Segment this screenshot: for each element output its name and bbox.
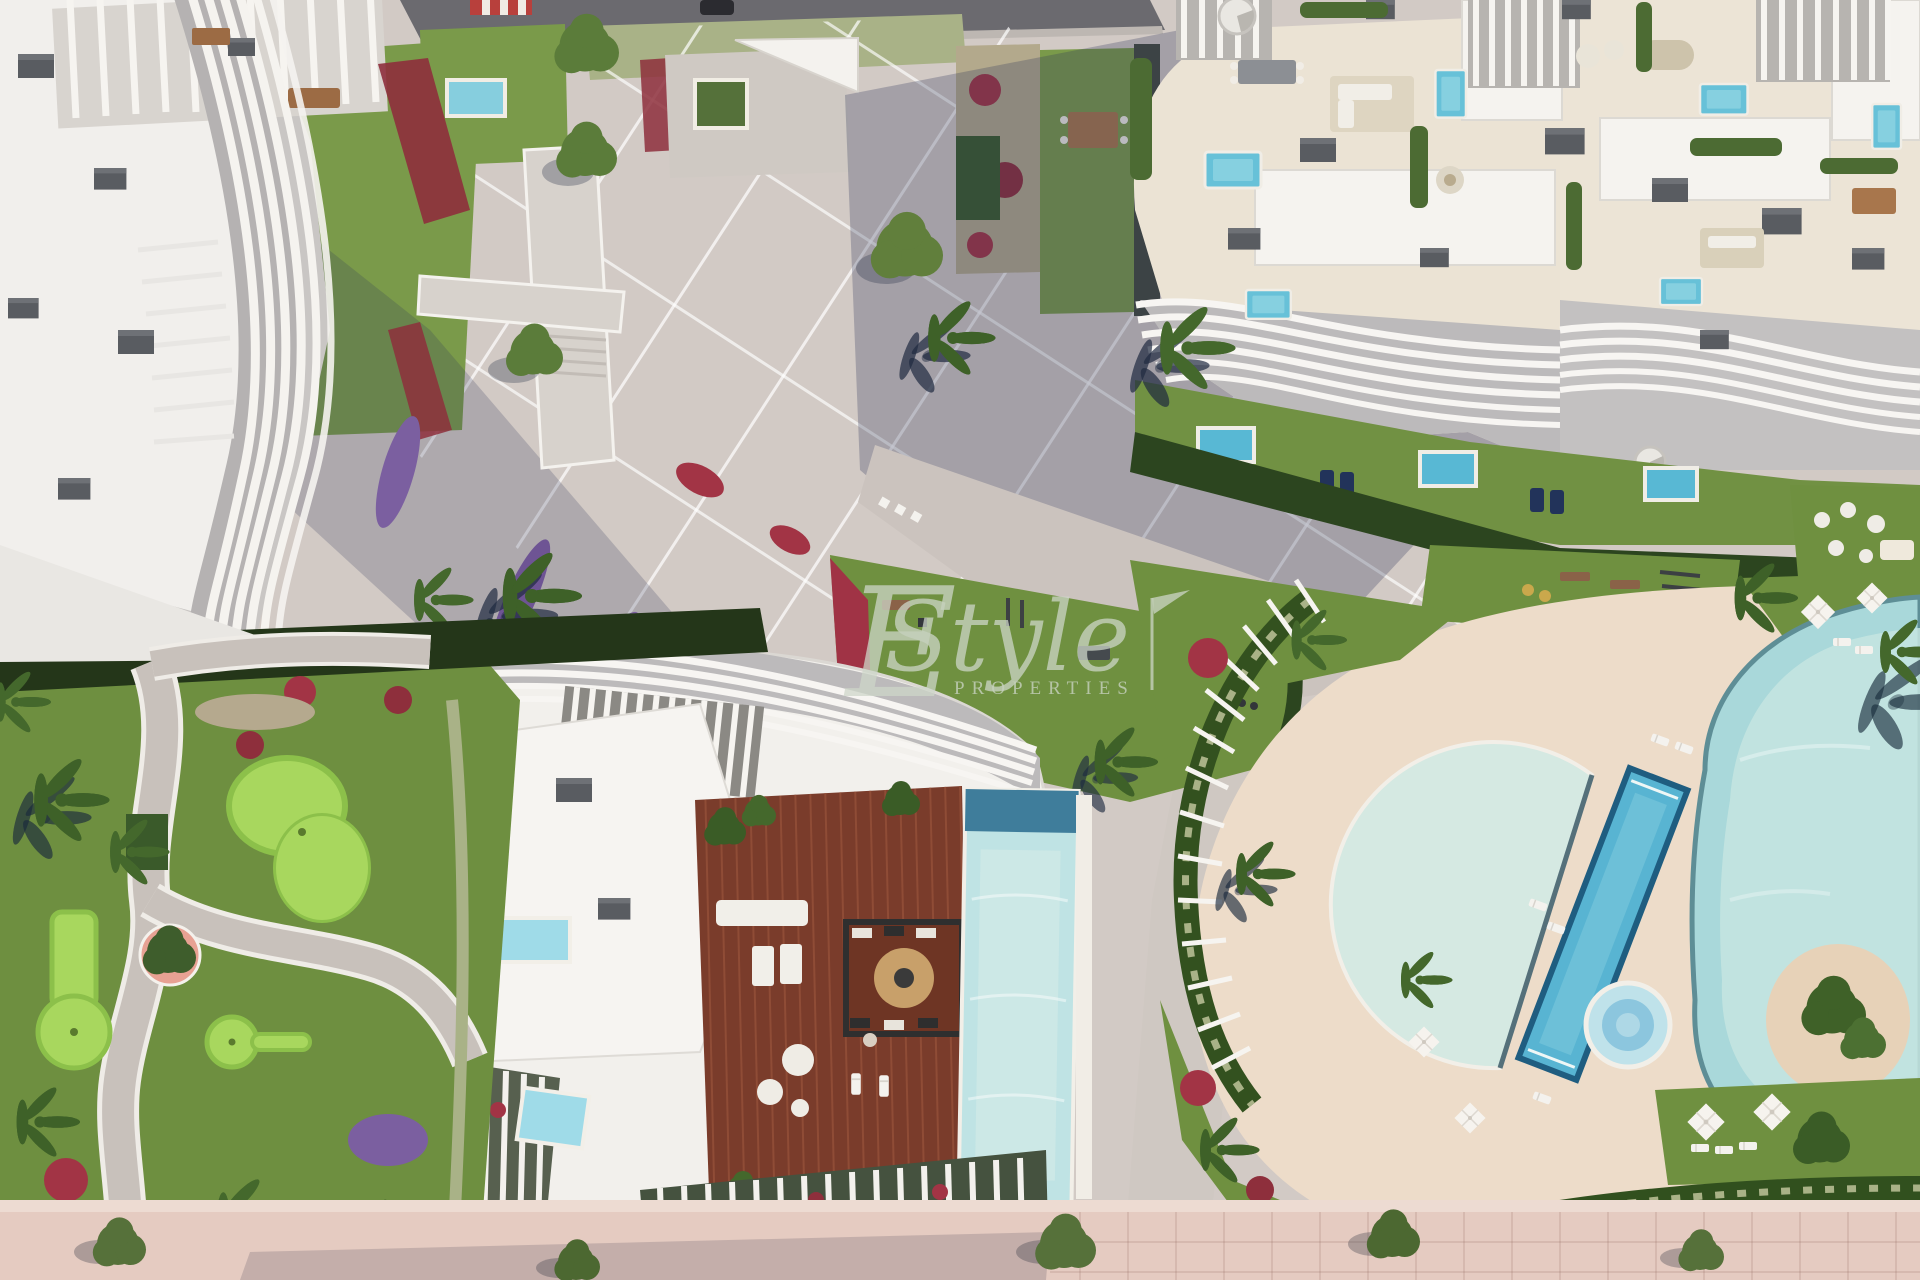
watermark-brand: Style (884, 581, 1130, 693)
terrace-table (192, 28, 230, 45)
terrace-plunge-pool (498, 918, 570, 962)
kids-pool (1586, 983, 1670, 1067)
egg-pouf (782, 1044, 814, 1076)
deck-sofa (716, 900, 808, 926)
private-pool (447, 80, 505, 116)
rooftop-wood-deck (695, 780, 970, 1225)
beach-promenade (0, 1200, 1920, 1280)
deck-lounge-square (846, 922, 962, 1034)
south-hedge-lawn (1655, 1078, 1920, 1185)
small-plunge-pool-sw (517, 1088, 590, 1149)
square-planter (695, 80, 747, 128)
pool-complex (1130, 560, 1920, 1256)
aerial-render: E Style PROPERTIES (0, 0, 1920, 1280)
render-canvas: E Style PROPERTIES (0, 0, 1920, 1280)
pool-edge-deck (1076, 795, 1092, 1199)
roof-slab (1255, 170, 1555, 265)
rooftop-pool (958, 789, 1078, 1203)
garden-pool (1645, 468, 1697, 500)
car (700, 0, 734, 15)
garden-pool (1420, 452, 1476, 486)
watermark-subtitle: PROPERTIES (954, 678, 1135, 699)
